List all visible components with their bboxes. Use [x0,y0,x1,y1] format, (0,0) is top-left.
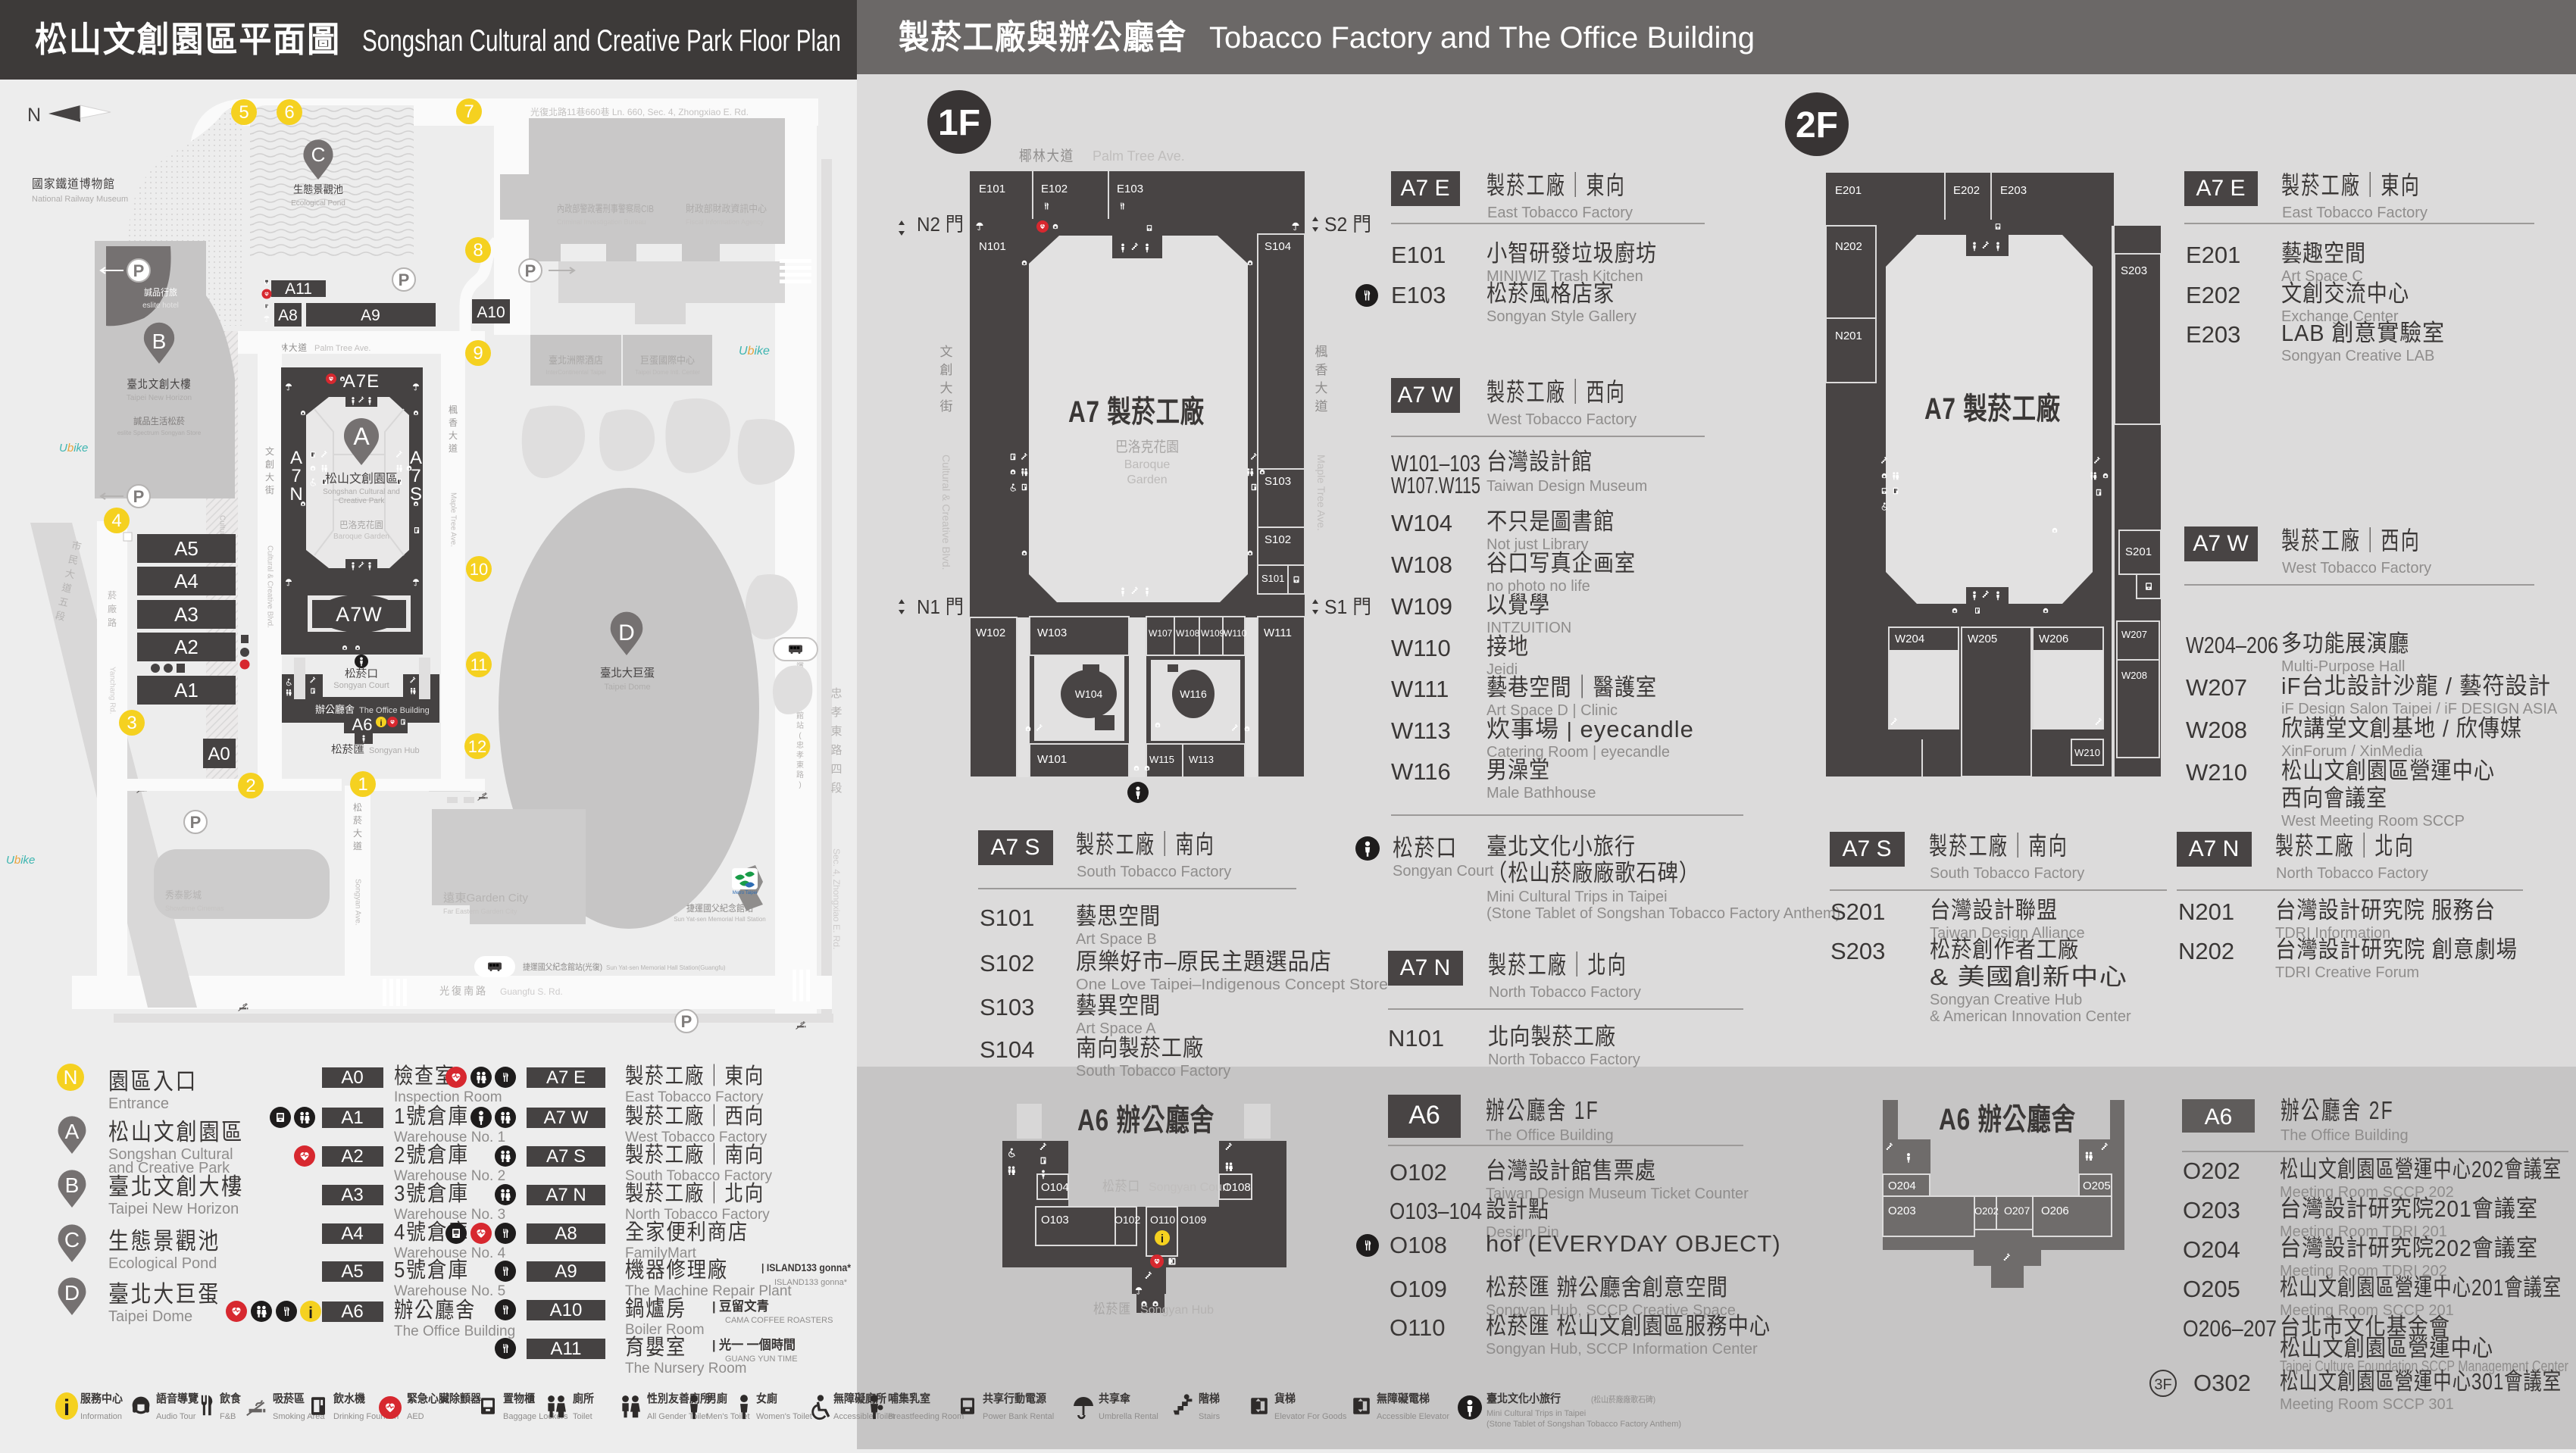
svg-text:W109: W109 [1201,628,1225,639]
svg-text:A: A [65,1120,80,1143]
svg-text:S2 門: S2 門 [1324,213,1371,236]
svg-text:Taipei Dome Intl. Center: Taipei Dome Intl. Center [635,369,700,376]
svg-text:遠東Garden City: 遠東Garden City [443,892,528,905]
svg-text:One Love Taipei–Indigenous Con: One Love Taipei–Indigenous Concept Store [1076,976,1388,993]
svg-text:製菸工廠｜東向: 製菸工廠｜東向 [1487,171,1626,199]
svg-text:置物櫃: 置物櫃 [503,1392,535,1405]
svg-text:Mini Cultural Trips in Taipei: Mini Cultural Trips in Taipei [1487,1409,1586,1418]
svg-text:北向製菸工廠: 北向製菸工廠 [1488,1023,1616,1050]
svg-text:光復南路: 光復南路 [439,985,488,997]
svg-text:S103: S103 [1265,475,1291,488]
svg-text:Sec. 4, Zhongxiao E. Rd.: Sec. 4, Zhongxiao E. Rd. [831,848,842,949]
svg-text:O204: O204 [2183,1236,2240,1263]
svg-text:A5: A5 [341,1261,363,1282]
svg-text:藝趣空間: 藝趣空間 [2281,240,2366,267]
svg-text:A4: A4 [341,1223,363,1244]
svg-text:松菸風格店家: 松菸風格店家 [1487,280,1615,307]
svg-text:& 美國創新中心: & 美國創新中心 [1930,964,2127,990]
svg-text:松菸口: 松菸口 [1102,1179,1140,1194]
svg-text:3號倉庫: 3號倉庫 [394,1181,469,1206]
svg-text:Audio Tour: Audio Tour [156,1412,196,1421]
svg-text:Criminal Investigation Bureau: Criminal Investigation Bureau [557,218,646,226]
svg-text:A6 辦公廳舍: A6 辦公廳舍 [1939,1102,2076,1136]
svg-text:臺北大巨蛋: 臺北大巨蛋 [108,1281,220,1308]
svg-text:製菸工廠｜南向: 製菸工廠｜南向 [625,1142,764,1167]
svg-text:iF台北設計沙龍 / 藝符設計: iF台北設計沙龍 / 藝符設計 [2281,673,2551,699]
svg-text:7: 7 [291,466,301,486]
svg-text:eslite Spectrum Songyan Store: eslite Spectrum Songyan Store [117,430,202,436]
svg-text:E202: E202 [2186,282,2240,308]
svg-text:W104: W104 [1075,688,1103,700]
svg-text:機器修理廠: 機器修理廠 [625,1258,728,1283]
svg-text:A7W: A7W [336,603,383,626]
svg-text:A3: A3 [174,603,199,626]
svg-text:A0: A0 [208,744,230,764]
svg-text:松山文創園區營運中心202會議室: 松山文創園區營運中心202會議室 [2280,1156,2562,1183]
svg-text:Songshan Cultural and: Songshan Cultural and [323,488,400,496]
svg-text:A10: A10 [550,1300,583,1320]
svg-text:Songyan Creative LAB: Songyan Creative LAB [2281,348,2434,364]
svg-text:A6: A6 [352,715,373,734]
svg-text:接地: 接地 [1487,633,1529,660]
svg-text:Taipei Dome: Taipei Dome [604,683,650,692]
svg-text:服務中心: 服務中心 [80,1392,123,1405]
svg-text:N201: N201 [1835,330,1862,342]
svg-text:製菸工廠｜南向: 製菸工廠｜南向 [1076,830,1215,858]
svg-text:East Tobacco Factory: East Tobacco Factory [2282,205,2428,221]
svg-text:The Office Building: The Office Building [1486,1127,1614,1144]
svg-text:松菸匯 辦公廳舍創意空間: 松菸匯 辦公廳舍創意空間 [1486,1274,1728,1301]
svg-text:W111: W111 [1391,676,1449,702]
svg-text:A7 W: A7 W [544,1108,589,1128]
svg-text:生態景觀池: 生態景觀池 [108,1228,220,1255]
svg-text:炊事場 | eyecandle: 炊事場 | eyecandle [1487,716,1694,742]
svg-text:C: C [311,143,326,166]
svg-text:巴洛克花園: 巴洛克花園 [1115,439,1179,455]
svg-text:Tobacco Factory and The Office: Tobacco Factory and The Office Building [1209,21,1755,55]
svg-text:InterContinental Taipei: InterContinental Taipei [546,369,606,376]
svg-text:W111: W111 [1264,627,1292,639]
svg-text:S203: S203 [2121,264,2147,277]
svg-text:Cultural & Creative Blvd.: Cultural & Creative Blvd. [940,455,952,570]
svg-text:Warehouse No. 5: Warehouse No. 5 [394,1283,505,1299]
svg-text:S201: S201 [1830,898,1885,925]
svg-text:A7 N: A7 N [1400,955,1451,980]
svg-text:1號倉庫: 1號倉庫 [394,1104,469,1129]
svg-text:松菸口: 松菸口 [1393,835,1458,861]
svg-text:W210: W210 [2074,747,2100,758]
svg-text:South Tobacco Factory: South Tobacco Factory [1077,864,1231,880]
svg-text:W206: W206 [2039,633,2068,645]
svg-text:Toilet: Toilet [573,1412,592,1421]
svg-text:南向製菸工廠: 南向製菸工廠 [1076,1035,1204,1061]
svg-text:製菸工廠｜南向: 製菸工廠｜南向 [1929,832,2068,860]
svg-text:台灣設計聯盟: 台灣設計聯盟 [1930,897,2058,923]
svg-text:A7 W: A7 W [1397,383,1453,408]
svg-text:哺集乳室: 哺集乳室 [888,1392,930,1405]
svg-text:Elevator For Goods: Elevator For Goods [1274,1412,1347,1421]
svg-text:松山文創園區營運中心: 松山文創園區營運中心 [2281,758,2495,784]
svg-text:製菸工廠｜北向: 製菸工廠｜北向 [2275,832,2415,860]
svg-text:A2: A2 [174,636,199,658]
svg-text:| 光一 一個時間: | 光一 一個時間 [712,1337,796,1352]
svg-text:Information: Information [80,1412,122,1421]
svg-text:S1 門: S1 門 [1324,595,1371,618]
svg-text:飲食: 飲食 [219,1392,242,1405]
svg-text:A11: A11 [285,280,312,298]
svg-text:捷運國父紀念館站(光復): 捷運國父紀念館站(光復) [523,961,602,972]
svg-text:Baroque Garden: Baroque Garden [333,533,389,541]
svg-text:F&B: F&B [220,1412,236,1421]
svg-text:N101: N101 [1388,1025,1444,1051]
svg-text:P: P [190,813,202,832]
svg-text:Metro Taipei: Metro Taipei [733,891,758,895]
svg-text:A7 W: A7 W [2193,531,2249,556]
svg-text:Taipei Dome: Taipei Dome [108,1308,192,1325]
svg-text:Maple Tree Ave.: Maple Tree Ave. [449,492,458,547]
svg-text:Accessible Elevator: Accessible Elevator [1377,1412,1449,1421]
svg-text:Umbrella Rental: Umbrella Rental [1099,1412,1158,1421]
svg-text:貨梯: 貨梯 [1274,1392,1296,1405]
svg-text:臺北文化小旅行: 臺北文化小旅行 [1487,1392,1561,1405]
svg-text:松山文創園區營運中心: 松山文創園區營運中心 [2280,1335,2493,1361]
svg-text:2: 2 [245,776,255,796]
svg-text:Ubike: Ubike [6,854,35,867]
svg-text:A: A [353,423,370,450]
svg-text:吸菸區: 吸菸區 [273,1392,305,1405]
svg-text:諴品生活松菸: 諴品生活松菸 [133,415,185,427]
svg-text:共享行動電源: 共享行動電源 [983,1392,1046,1405]
svg-text:Guangfu S. Rd.: Guangfu S. Rd. [500,986,563,997]
svg-text:製菸工廠｜東向: 製菸工廠｜東向 [2281,171,2421,199]
svg-text:N1 門: N1 門 [917,595,964,618]
svg-text:Fiscal Information Agency: Fiscal Information Agency [686,218,764,226]
svg-text:Stairs: Stairs [1199,1412,1221,1421]
svg-text:P: P [399,270,410,289]
svg-text:全家便利商店: 全家便利商店 [625,1220,749,1245]
svg-text:以覺學: 以覺學 [1487,592,1550,618]
svg-text:W110: W110 [1224,628,1247,639]
svg-text:W113: W113 [1391,717,1451,744]
svg-text:W210: W210 [2186,759,2247,786]
svg-text:12: 12 [468,737,486,756]
svg-text:B: B [65,1173,80,1197]
svg-text:East Tobacco Factory: East Tobacco Factory [625,1089,764,1105]
svg-text:W207: W207 [2186,674,2247,701]
svg-text:O207: O207 [2004,1205,2030,1217]
svg-text:O108: O108 [1390,1232,1447,1258]
svg-text:Women's Toilet: Women's Toilet [756,1412,812,1421]
svg-text:O302: O302 [2193,1370,2251,1396]
svg-text:松菸創作者工廠: 松菸創作者工廠 [1930,936,2079,963]
svg-text:E101: E101 [1391,242,1446,268]
svg-text:A6 辦公廳舍: A6 辦公廳舍 [1077,1103,1215,1137]
svg-text:O102: O102 [1114,1214,1140,1226]
svg-text:Songyan Court: Songyan Court [1393,863,1494,880]
svg-text:Art Space B: Art Space B [1076,931,1157,948]
svg-text:7: 7 [464,102,474,122]
svg-text:S104: S104 [1265,240,1291,253]
svg-text:W102: W102 [976,627,1005,639]
svg-text:台灣設計館售票處: 台灣設計館售票處 [1486,1158,1656,1184]
svg-text:West Tobacco Factory: West Tobacco Factory [1487,411,1637,428]
svg-text:松菸匯: 松菸匯 [1093,1301,1131,1317]
svg-text:3: 3 [127,713,136,733]
svg-text:S101: S101 [980,905,1034,931]
svg-text:O203: O203 [1888,1205,1916,1217]
svg-text:設計點: 設計點 [1486,1196,1549,1223]
svg-text:E202: E202 [1953,184,1980,197]
svg-text:Accessible Toilet: Accessible Toilet [833,1412,895,1421]
svg-text:N: N [289,484,302,505]
svg-text:Songyan Court: Songyan Court [1149,1181,1230,1194]
svg-text:辦公廳舍: 辦公廳舍 [394,1298,476,1323]
svg-text:(松山菸廠廠歌石碑): (松山菸廠廠歌石碑) [1591,1394,1655,1405]
svg-text:(Stone Tablet of Songshan Toba: (Stone Tablet of Songshan Tobacco Factor… [1487,905,1840,922]
svg-text:臺北大巨蛋: 臺北大巨蛋 [600,667,655,680]
svg-text:Breastfeeding Room: Breastfeeding Room [888,1412,964,1421]
svg-text:臺北文化小旅行: 臺北文化小旅行 [1487,833,1636,860]
svg-text:A8: A8 [555,1223,577,1244]
svg-text:A6: A6 [2205,1105,2233,1130]
svg-text:10: 10 [470,560,488,579]
svg-text:Garden: Garden [1127,473,1167,486]
svg-text:Ecological Pond: Ecological Pond [108,1255,217,1272]
svg-text:A7 S: A7 S [546,1146,586,1167]
svg-text:女廁: 女廁 [756,1392,777,1405]
svg-text:A7 S: A7 S [1842,836,1891,861]
svg-text:園區入口: 園區入口 [108,1068,198,1095]
svg-text:生態景觀池: 生態景觀池 [293,183,343,195]
svg-text:Yanchang Rd.: Yanchang Rd. [108,667,117,714]
svg-text:Songyan Court: Songyan Court [333,681,389,690]
svg-text:W204–206: W204–206 [2186,632,2278,658]
svg-text:共享傘: 共享傘 [1099,1392,1131,1405]
svg-text:N202: N202 [2178,938,2234,964]
svg-text:The Office Building: The Office Building [394,1323,515,1339]
svg-text:S101: S101 [1261,573,1284,584]
svg-text:O202: O202 [1974,1205,1999,1217]
svg-text:A7 製菸工廠: A7 製菸工廠 [1068,395,1205,429]
svg-text:松山文創園區平面圖: 松山文創園區平面圖 [35,20,341,59]
svg-text:W108: W108 [1176,628,1200,639]
svg-text:臺北文創大樓: 臺北文創大樓 [127,378,192,391]
svg-text:台灣設計館: 台灣設計館 [1487,448,1593,475]
svg-text:松菸匯 松山文創園區服務中心: 松菸匯 松山文創園區服務中心 [1486,1313,1771,1339]
svg-text:光復北路11巷660巷 Ln. 660, Sec. 4,: 光復北路11巷660巷 Ln. 660, Sec. 4, Zhongxiao E… [530,106,749,117]
svg-text:Male Bathhouse: Male Bathhouse [1487,785,1596,801]
svg-text:Mini Cultural Trips in Taipei: Mini Cultural Trips in Taipei [1487,889,1668,905]
svg-text:W116: W116 [1391,758,1451,785]
svg-text:LAB 創意實驗室: LAB 創意實驗室 [2281,320,2445,346]
svg-text:Ecological Pond: Ecological Pond [291,199,345,208]
svg-text:W208: W208 [2186,717,2247,743]
svg-text:O203: O203 [2183,1197,2240,1223]
svg-text:W116: W116 [1180,688,1207,700]
svg-text:O204: O204 [1888,1180,1916,1192]
svg-text:O110: O110 [1390,1314,1446,1341]
svg-text:11: 11 [470,655,488,674]
svg-text:A7 E: A7 E [2196,176,2245,201]
svg-text:1F: 1F [938,103,980,143]
svg-text:South Tobacco Factory: South Tobacco Factory [1930,865,2084,882]
svg-text:Sun Yat-sen Memorial Hall Stat: Sun Yat-sen Memorial Hall Station(Guangf… [606,964,726,971]
svg-text:Songshan Cultural and Creative: Songshan Cultural and Creative Park Floo… [362,24,841,58]
svg-text:Ubike: Ubike [739,345,770,358]
svg-text:辦公廳舍: 辦公廳舍 [315,704,355,715]
svg-text:育嬰室: 育嬰室 [625,1335,686,1360]
svg-text:男澡堂: 男澡堂 [1487,757,1550,783]
svg-text:O205: O205 [2183,1276,2240,1302]
svg-text:B: B [152,330,167,353]
svg-text:W101: W101 [1037,753,1067,766]
svg-text:製菸工廠｜西向: 製菸工廠｜西向 [625,1104,764,1129]
svg-text:辦公廳舍 1F: 辦公廳舍 1F [1486,1096,1599,1124]
svg-text:D: D [618,620,635,645]
svg-text:2號倉庫: 2號倉庫 [394,1142,469,1167]
svg-text:Songyan Hub, SCCP Information: Songyan Hub, SCCP Information Center [1486,1341,1758,1358]
svg-text:Songyan Creative Hub: Songyan Creative Hub [1930,992,2082,1008]
svg-text:(Stone Tablet of Songshan Toba: (Stone Tablet of Songshan Tobacco Factor… [1487,1420,1681,1429]
svg-text:eslite hotel: eslite hotel [142,302,179,310]
svg-text:Songyan Hub: Songyan Hub [1140,1304,1214,1317]
svg-text:鍋爐房: 鍋爐房 [625,1296,686,1321]
svg-text:9: 9 [473,343,483,364]
svg-text:7: 7 [411,466,420,486]
svg-text:臺北洲際酒店: 臺北洲際酒店 [549,355,603,366]
svg-text:A7 製菸工廠: A7 製菸工廠 [1924,392,2061,426]
svg-text:財政部財政資訊中心: 財政部財政資訊中心 [686,203,767,214]
svg-text:W207: W207 [2121,629,2147,640]
svg-text:i: i [380,719,382,728]
svg-text:（松山菸廠廠歌石碑）: （松山菸廠廠歌石碑） [1487,860,1700,886]
svg-text:Maple Tree Ave.: Maple Tree Ave. [1315,455,1327,531]
svg-text:S: S [410,484,422,505]
svg-text:W109: W109 [1391,593,1452,620]
svg-text:A9: A9 [361,307,380,324]
svg-text:Entrance: Entrance [108,1095,169,1112]
svg-text:6: 6 [284,102,294,123]
svg-text:North Tobacco Factory: North Tobacco Factory [1488,1051,1640,1068]
svg-text:階梯: 階梯 [1199,1392,1220,1405]
svg-text:E103: E103 [1391,282,1446,308]
svg-text:台灣設計研究院202會議室: 台灣設計研究院202會議室 [2280,1235,2538,1261]
svg-text:A: A [290,448,302,468]
svg-text:The Office Building: The Office Building [359,706,430,715]
svg-text:廁所: 廁所 [573,1392,594,1405]
svg-text:松山文創園區營運中心301會議室: 松山文創園區營運中心301會議室 [2280,1368,2562,1395]
svg-text:National Railway Museum: National Railway Museum [32,195,128,204]
svg-text:藝巷空間｜醫護室: 藝巷空間｜醫護室 [1487,674,1657,701]
svg-text:Songyan Style Gallery: Songyan Style Gallery [1487,308,1637,325]
svg-text:多功能展演廳: 多功能展演廳 [2281,630,2409,657]
svg-text:台灣設計研究院 創意劇場: 台灣設計研究院 創意劇場 [2275,936,2518,963]
svg-text:製菸工廠｜西向: 製菸工廠｜西向 [1487,378,1626,406]
svg-text:O205: O205 [2083,1180,2111,1192]
svg-text:Taipei New Horizon: Taipei New Horizon [108,1201,239,1217]
svg-text:E102: E102 [1041,183,1068,195]
svg-text:N: N [64,1066,78,1089]
svg-text:欣講堂文創基地 / 欣傳媒: 欣講堂文創基地 / 欣傳媒 [2281,715,2522,742]
svg-text:菸廠路: 菸廠路 [108,590,117,628]
svg-text:A: A [410,448,422,468]
svg-text:A6: A6 [341,1301,363,1322]
svg-text:S201: S201 [2125,545,2152,558]
svg-text:W108: W108 [1391,552,1452,578]
svg-text:W104: W104 [1391,510,1452,536]
svg-text:Meeting Room SCCP 301: Meeting Room SCCP 301 [2280,1396,2454,1413]
svg-text:E103: E103 [1117,183,1143,195]
svg-text:i: i [1161,1233,1164,1245]
svg-text:W103: W103 [1037,627,1067,639]
svg-text:E203: E203 [2186,321,2240,348]
svg-text:All Gender Toilet: All Gender Toilet [647,1412,708,1421]
svg-text:A7 N: A7 N [2189,836,2240,861]
svg-text:O104: O104 [1041,1181,1069,1194]
svg-text:不只是圖書館: 不只是圖書館 [1487,508,1615,535]
svg-text:W204: W204 [1895,633,1924,645]
svg-text:| ISLAND133 gonna*: | ISLAND133 gonna* [761,1261,851,1273]
svg-text:A7 E: A7 E [546,1067,586,1088]
svg-text:A6: A6 [1408,1101,1440,1130]
svg-text:P: P [525,261,536,280]
svg-text:i: i [64,1395,70,1420]
svg-text:P: P [133,487,145,506]
svg-text:藝思空間: 藝思空間 [1076,903,1161,930]
svg-text:E201: E201 [1835,184,1862,197]
svg-text:製菸工廠｜北向: 製菸工廠｜北向 [625,1181,764,1206]
svg-text:無障礙電梯: 無障礙電梯 [1377,1392,1430,1405]
svg-text:O103–104: O103–104 [1390,1198,1482,1224]
svg-text:N201: N201 [2178,898,2234,925]
svg-text:i: i [308,1305,313,1322]
svg-text:3F: 3F [2154,1376,2171,1393]
svg-text:West Tobacco Factory: West Tobacco Factory [2282,560,2431,577]
svg-text:S102: S102 [980,950,1034,976]
svg-text:5號倉庫: 5號倉庫 [394,1258,469,1283]
svg-text:& American Innovation Center: & American Innovation Center [1930,1008,2131,1025]
svg-text:O108: O108 [1223,1181,1251,1194]
svg-text:小智研發垃圾廚坊: 小智研發垃圾廚坊 [1487,240,1657,267]
svg-text:飲水機: 飲水機 [333,1392,365,1405]
svg-text:North Tobacco Factory: North Tobacco Factory [2276,865,2428,882]
svg-text:A4: A4 [174,570,199,592]
svg-text:4: 4 [111,511,121,531]
svg-text:A3: A3 [341,1185,363,1205]
svg-text:CAMA COFFEE ROASTERS: CAMA COFFEE ROASTERS [725,1316,833,1325]
svg-text:A7 N: A7 N [546,1185,586,1205]
svg-text:8: 8 [473,240,483,261]
svg-text:松山文創園區: 松山文創園區 [325,472,398,486]
svg-text:松山文創園區: 松山文創園區 [108,1119,244,1145]
svg-text:秀泰影城: 秀泰影城 [165,889,202,901]
svg-text:TDRI Creative Forum: TDRI Creative Forum [2275,964,2419,981]
svg-text:Taiwan Design Museum: Taiwan Design Museum [1487,478,1647,495]
svg-text:E201: E201 [2186,242,2240,268]
svg-text:製菸工廠｜西向: 製菸工廠｜西向 [2281,527,2421,555]
svg-text:椰林大道: 椰林大道 [1019,148,1074,164]
svg-text:W113: W113 [1189,754,1214,765]
svg-text:松菸匯: 松菸匯 [331,743,364,755]
svg-text:N2 門: N2 門 [917,213,964,236]
svg-text:1: 1 [358,774,367,795]
svg-text:Palm Tree Ave.: Palm Tree Ave. [314,344,370,353]
svg-text:E203: E203 [2000,184,2027,197]
svg-text:松山文創園區營運中心201會議室: 松山文創園區營運中心201會議室 [2280,1274,2562,1301]
svg-text:Palm Tree Ave.: Palm Tree Ave. [1093,148,1185,164]
svg-text:The Office Building: The Office Building [2281,1127,2409,1144]
svg-text:無障礙廁所: 無障礙廁所 [833,1392,886,1405]
